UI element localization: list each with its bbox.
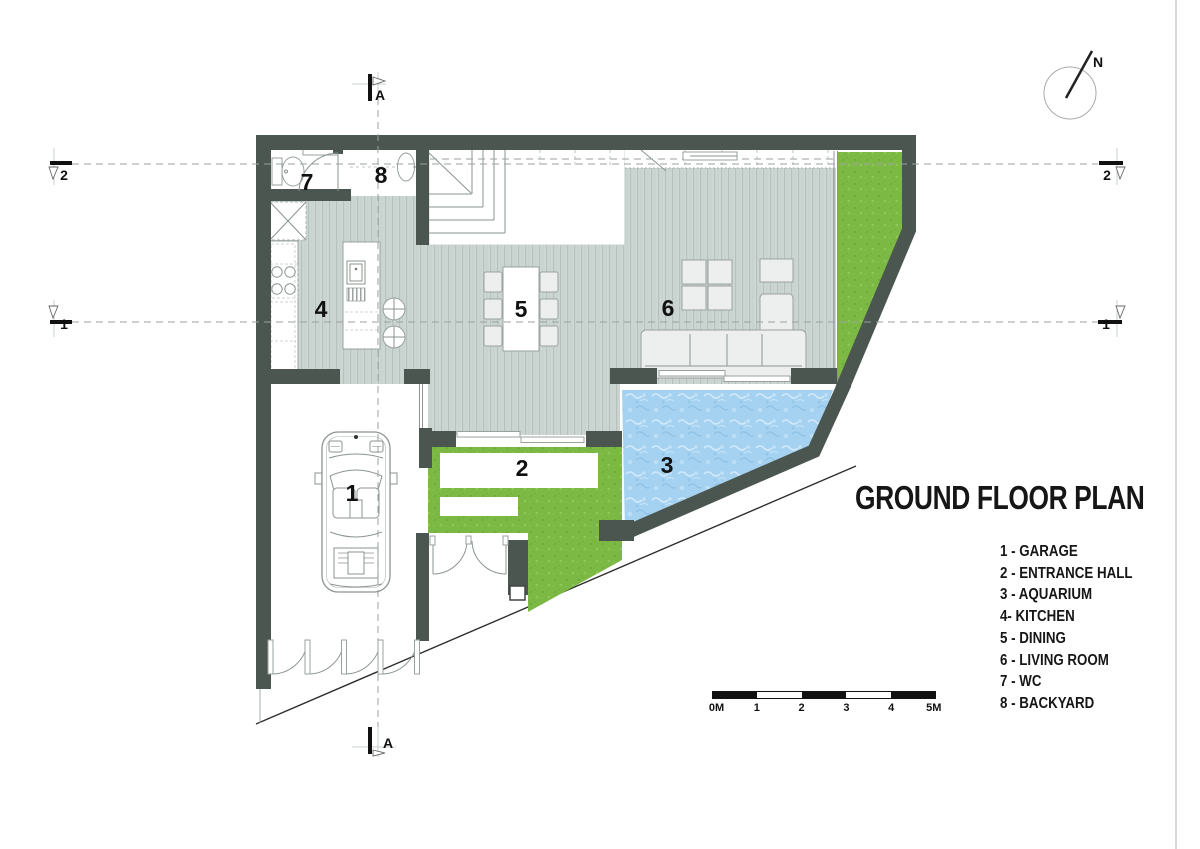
scale-bar-segments [712,691,936,699]
label-backyard: 8 [375,162,388,188]
wall-stairwell [416,135,429,245]
stairwell-floor [429,147,625,245]
scale-label: 3 [843,702,849,714]
section-marker-1-left: 1 [49,306,72,332]
side-table-icon [760,259,793,282]
label-aquarium: 3 [661,452,674,478]
label-wc: 7 [301,169,314,195]
label-living-room: 6 [662,295,675,321]
svg-text:1: 1 [60,316,68,332]
kitchen-counter [268,241,298,380]
scale-label: 4 [888,702,894,714]
label-garage: 1 [346,480,359,506]
scale-label: 1 [754,702,760,714]
legend-item: 3 - AQUARIUM [1000,584,1133,606]
section-marker-a-top: A [352,74,386,103]
section-marker-a-bottom: A [352,727,396,756]
wall-shelf [683,152,737,160]
scale-label: 2 [799,702,805,714]
svg-text:A: A [383,735,393,751]
legend-item: 5 - DINING [1000,628,1133,650]
utility-box [510,586,525,600]
toilet-tank-icon [272,158,282,185]
legend-item: 2 - ENTRANCE HALL [1000,563,1133,585]
svg-text:2: 2 [1103,167,1111,183]
legend-item: 7 - WC [1000,671,1133,693]
legend-item: 8 - BACKYARD [1000,693,1133,715]
scale-label: 0M [709,702,724,714]
skylight-icon [270,202,306,240]
floor-plan-sheet: 2 2 1 1 A A 1 2 3 4 5 6 7 8 [0,0,1200,849]
svg-text:N: N [1093,54,1103,70]
section-marker-2-right: 2 [1099,161,1125,183]
section-marker-2-left: 2 [49,161,72,183]
wall-top [256,135,916,150]
kitchen-island [343,242,380,349]
floor-plan-drawing: 2 2 1 1 A A 1 2 3 4 5 6 7 8 [0,0,1200,849]
car-icon [315,432,397,592]
wall-garage-right [416,533,429,641]
basin-icon [398,153,415,181]
scale-label: 5M [926,702,941,714]
svg-text:A: A [375,87,385,103]
garage-folding-doors [268,640,420,674]
legend-item: 1 - GARAGE [1000,541,1133,563]
wall-left [256,135,271,689]
legend-item: 4- KITCHEN [1000,606,1133,628]
scale-bar: 0M 1 2 3 4 5M [712,691,936,718]
svg-text:2: 2 [60,167,68,183]
room-legend: 1 - GARAGE 2 - ENTRANCE HALL 3 - AQUARIU… [1000,541,1154,715]
bar-stool-icon [383,298,405,320]
svg-text:1: 1 [1102,316,1110,332]
label-dining: 5 [515,296,528,322]
drawing-title: GROUND FLOOR PLAN [855,479,1144,517]
north-arrow-icon: N [1044,51,1103,119]
legend-item: 6 - LIVING ROOM [1000,650,1133,672]
entrance-gate-doors [430,536,508,574]
label-kitchen: 4 [315,296,328,322]
section-marker-1-right: 1 [1098,306,1125,332]
bar-stool-icon [383,326,405,348]
wall-garage-top-left [256,369,340,384]
label-entrance-hall: 2 [516,455,529,481]
wall-garage-top-right [404,369,430,384]
